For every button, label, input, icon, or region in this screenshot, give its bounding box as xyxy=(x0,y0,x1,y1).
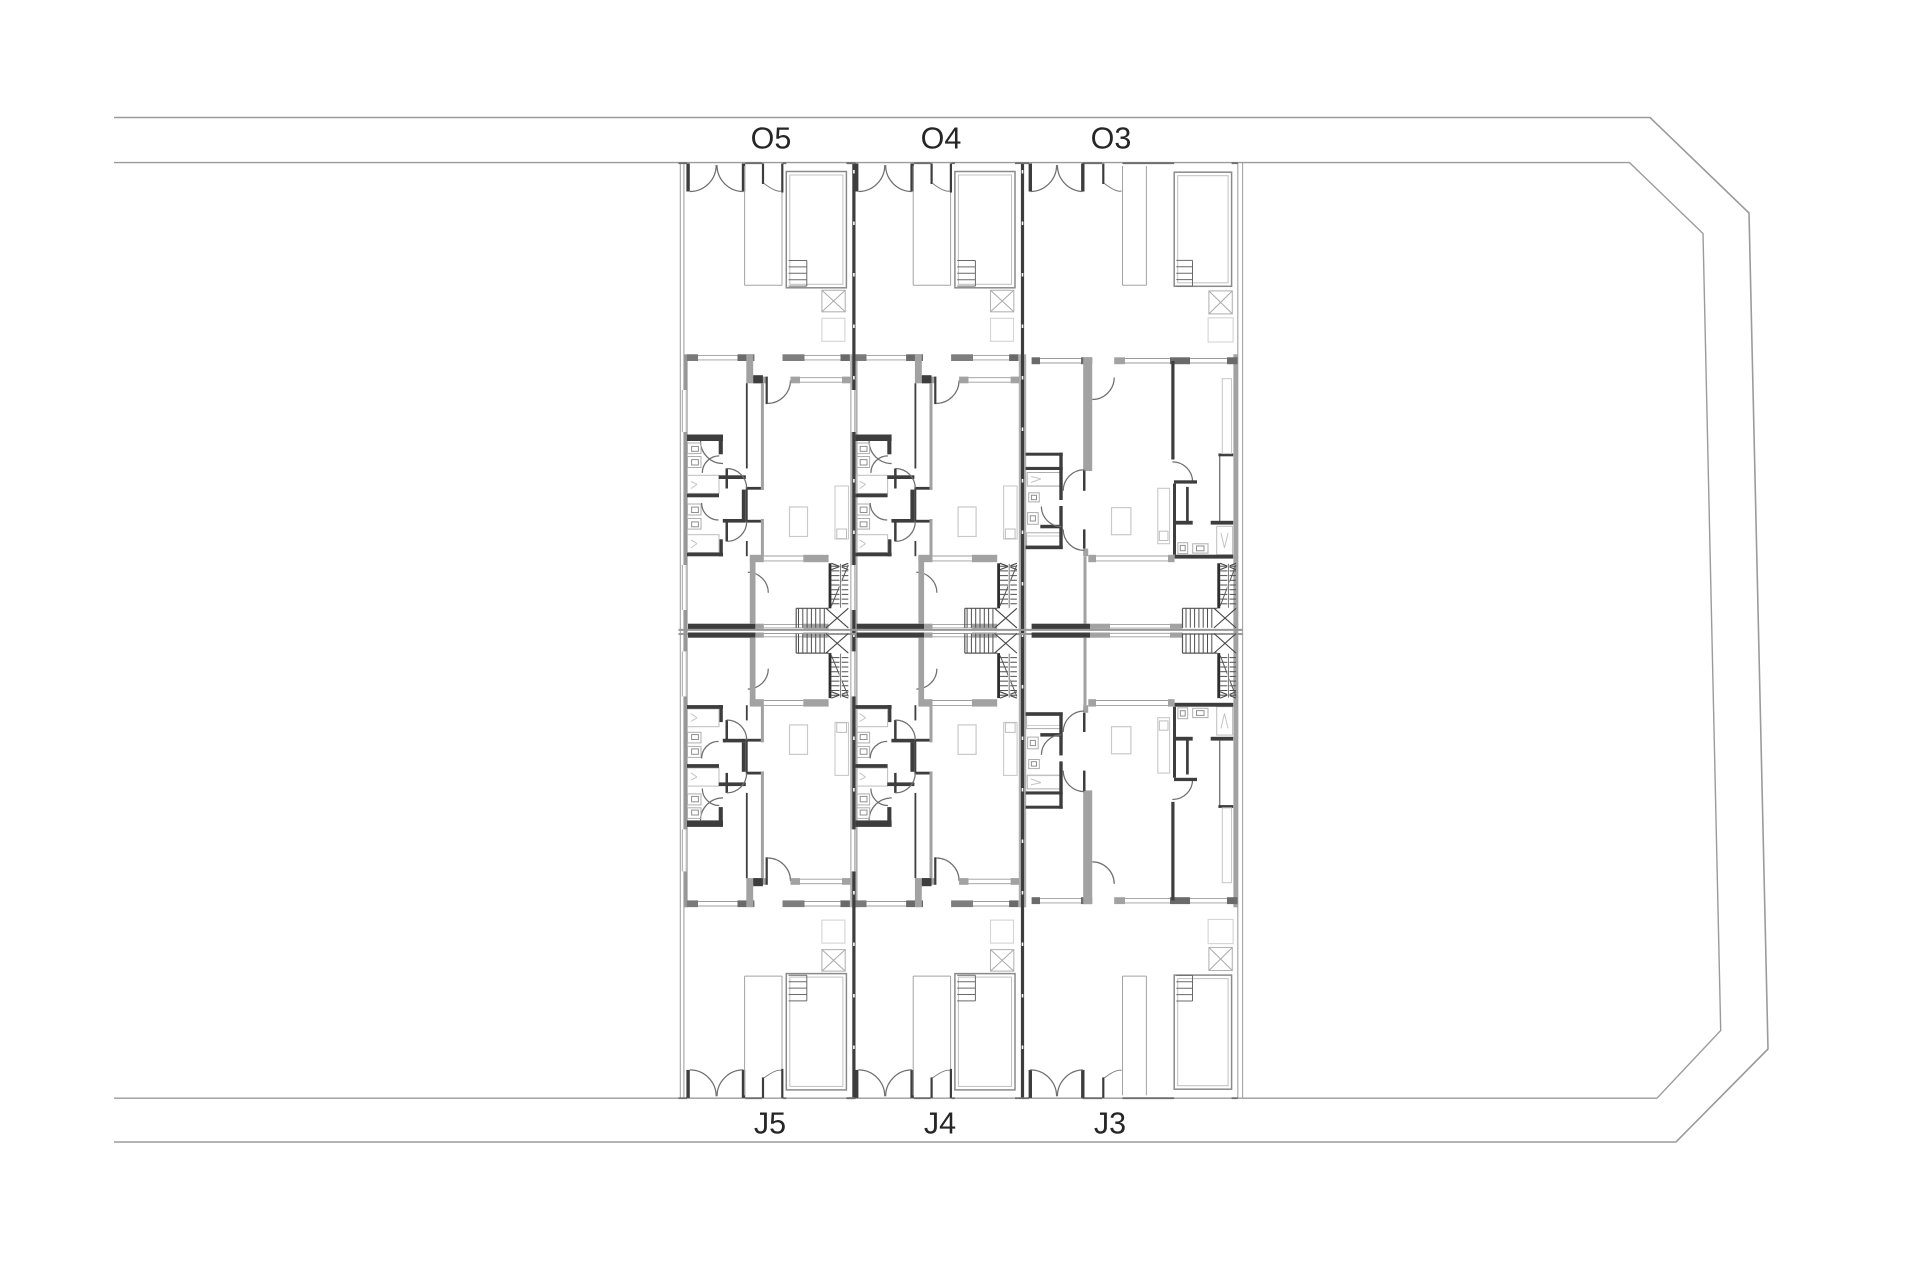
svg-text:O4: O4 xyxy=(921,122,962,156)
svg-text:O5: O5 xyxy=(751,122,792,156)
svg-text:J3: J3 xyxy=(1094,1107,1126,1141)
svg-text:O3: O3 xyxy=(1091,122,1132,156)
svg-text:J4: J4 xyxy=(924,1107,956,1141)
svg-text:J5: J5 xyxy=(754,1107,786,1141)
